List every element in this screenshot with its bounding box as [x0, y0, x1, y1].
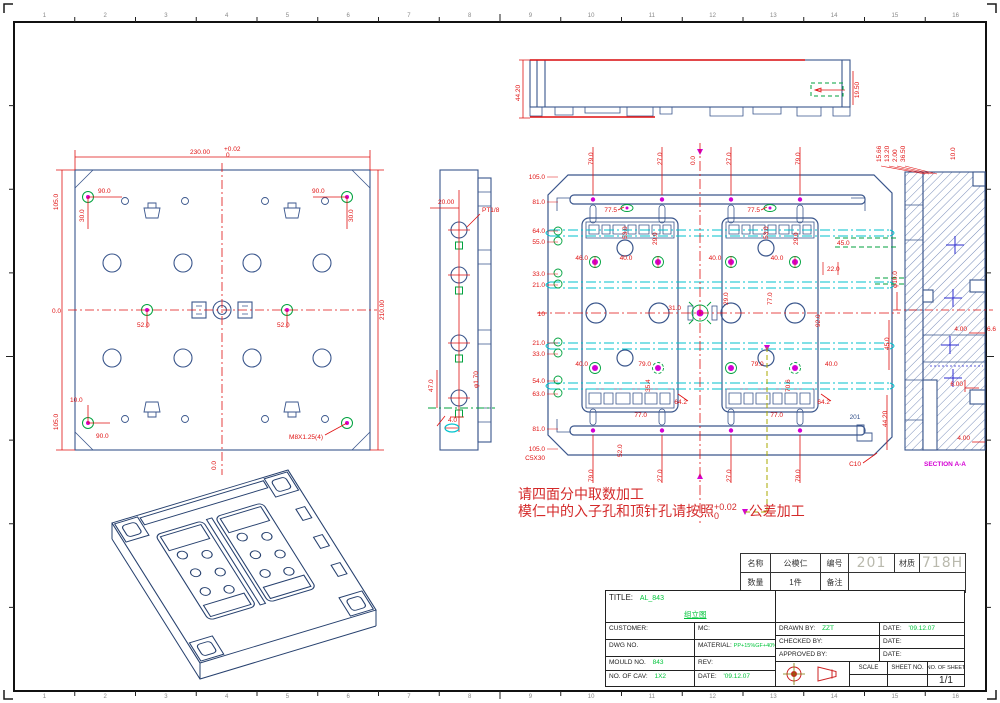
- dim-label: 90.0: [96, 433, 109, 440]
- drawn-by-label: DRAWN BY:: [779, 625, 815, 632]
- dim-label: 21.0: [532, 282, 545, 289]
- zone-label: 8: [439, 12, 500, 20]
- zone-label: 16: [925, 12, 986, 20]
- zone-label: 13: [743, 693, 804, 701]
- dim-label: 30.0: [79, 209, 86, 222]
- section-label: SECTION A-A: [924, 461, 966, 468]
- dim-label: 10: [538, 311, 546, 318]
- dim-label: 40.0: [709, 255, 722, 262]
- parts-no-label: 编号: [821, 554, 849, 573]
- zone-label: 14: [804, 693, 865, 701]
- dim-label: 40.0: [771, 255, 784, 262]
- dim-label: 64.2: [674, 399, 687, 406]
- dim-label: 105.0: [529, 446, 546, 453]
- section-view: 15.66 13.20 2.00 36.50 10.0 φ10.0 45.0 4…: [875, 130, 1000, 475]
- mould-no-label: MOULD NO.: [609, 659, 646, 666]
- zone-label: 1: [14, 693, 75, 701]
- dim-label: 10.0: [70, 397, 83, 404]
- dim-label: 81.0: [532, 426, 545, 433]
- engineering-drawing-sheet: { "colors":{"line":"#3a568c","dim":"#e01…: [0, 0, 1000, 703]
- dim-label: 22.0: [827, 266, 840, 273]
- parts-material-label: 材质: [895, 554, 920, 573]
- zone-label: 8: [439, 693, 500, 701]
- material-value: PP+15%GF+40%MD: [734, 643, 776, 649]
- note-suffix: 公差加工: [749, 503, 805, 519]
- dim-label: 77.0: [634, 412, 647, 419]
- dim-label: 2.00: [892, 149, 899, 162]
- subtitle: 组立图: [684, 609, 707, 620]
- scale-value: [849, 674, 887, 686]
- dim-label: 10.0: [950, 147, 957, 160]
- dim-label: 105.0: [53, 413, 60, 430]
- dim-label: 13.20: [884, 145, 891, 162]
- zone-label: 16: [925, 693, 986, 701]
- dim-label: 79.0: [795, 469, 802, 482]
- dim-label: 6.6: [987, 326, 996, 333]
- part-number-mark: 201: [850, 414, 861, 421]
- zone-label: 2: [75, 12, 136, 20]
- dim-label: 40.0: [825, 361, 838, 368]
- dim-label: 79.0: [638, 361, 651, 368]
- dim-label: 77.5: [747, 207, 760, 214]
- approved-by-label: APPROVED BY:: [779, 651, 827, 658]
- title-value: AL_843: [640, 595, 664, 602]
- dim-label: 0.0: [52, 308, 61, 315]
- zone-label: 5: [257, 12, 318, 20]
- zone-label: 1: [14, 12, 75, 20]
- dwg-no-label: DWG NO.: [609, 642, 638, 649]
- dim-label: 44.20: [882, 410, 889, 427]
- cone-symbol-icon: [818, 667, 836, 681]
- dim-label: 27.0: [657, 469, 664, 482]
- zone-label: 12: [682, 12, 743, 20]
- dim-label: 63.0: [532, 391, 545, 398]
- dim-label: 79.0: [588, 152, 595, 165]
- zone-label: 15: [865, 693, 926, 701]
- dim-label: 79.0: [795, 152, 802, 165]
- note-line1: 请四面分中取数加工: [518, 486, 805, 503]
- dim-label: 53.0: [763, 226, 770, 239]
- parts-name-value: 公模仁: [771, 554, 821, 573]
- dim-label: 4.00: [954, 326, 967, 333]
- zone-label: 6: [318, 12, 379, 20]
- scale-label: SCALE: [859, 665, 879, 671]
- dim-label: 30.0: [348, 209, 355, 222]
- customer-label: CUSTOMER:: [609, 625, 648, 632]
- dim-label: 15.66: [876, 145, 883, 162]
- dim-label: 45.0: [837, 240, 850, 247]
- parts-table: 名称 公模仁 编号 201 材质 718H 数量 1件 备注: [740, 553, 966, 593]
- dim-label: 4.0: [448, 417, 457, 424]
- dim-label: 27.0: [657, 152, 664, 165]
- zone-label: 9: [500, 693, 561, 701]
- dim-label: 55.0: [532, 239, 545, 246]
- note-line2: 模仁中的入子孔和顶针孔请按照+0.020公差加工: [518, 503, 805, 521]
- dim-label: 52.0: [617, 444, 624, 457]
- dim-label: 77.0: [770, 412, 783, 419]
- dim-label: 64.0: [532, 228, 545, 235]
- zone-label: 12: [682, 693, 743, 701]
- dim-label: 31.0: [668, 305, 681, 312]
- cav-label: NO. OF CAV:: [609, 673, 648, 680]
- dim-label: 19.50: [854, 81, 861, 98]
- sheet-no-label: SHEET NO.: [891, 665, 923, 671]
- zone-label: 3: [136, 12, 197, 20]
- dim-label: 45.0: [884, 337, 891, 350]
- zone-label: 13: [743, 12, 804, 20]
- main-view: 105.0 81.0 64.0 55.0 33.0 21.0 10 21.0 3…: [505, 135, 915, 530]
- isometric-view: [85, 455, 425, 700]
- dim-label: 35.4: [645, 379, 652, 392]
- dim-label: φ1.70: [473, 371, 480, 388]
- title-empty-cell: [776, 591, 964, 623]
- dim-label: 6.00: [950, 381, 963, 388]
- zone-label: 11: [622, 12, 683, 20]
- mc-label: MC:: [698, 625, 710, 632]
- zone-label: 14: [804, 12, 865, 20]
- dim-label: φ10.0: [892, 271, 899, 288]
- dim-label: 29.0: [793, 232, 800, 245]
- dim-label: 70.6: [785, 379, 792, 392]
- dim-label: 47.0: [428, 379, 435, 392]
- dim-label: 92.0: [815, 314, 822, 327]
- material-label: MATERIAL:: [698, 642, 732, 649]
- dim-label: 33.0: [532, 351, 545, 358]
- drawn-by-value: ZZT: [822, 625, 834, 632]
- tolerance-lower: 0: [714, 511, 719, 521]
- dim-label: 0: [226, 152, 230, 159]
- dim-label: 90.0: [98, 188, 111, 195]
- zone-label: 15: [865, 12, 926, 20]
- dim-label: 54.0: [532, 378, 545, 385]
- dim-label: 79.0: [588, 469, 595, 482]
- dim-label: 36.50: [900, 145, 907, 162]
- mould-no-value: 843: [653, 659, 664, 666]
- dim-label: 77.5: [604, 207, 617, 214]
- dim-label: 46.0: [575, 255, 588, 262]
- cav-value: 1X2: [654, 673, 666, 680]
- dim-label: 21.0: [532, 340, 545, 347]
- dim-label: 52.0: [137, 322, 150, 329]
- plan-view: 230.00 +0.02 0 105.0 0.0 105.0 210.00 90…: [40, 130, 400, 480]
- dim-label: 20.00: [438, 199, 455, 206]
- date1-value: '09.12.07: [908, 625, 935, 632]
- dim-label: 230.00: [190, 149, 210, 156]
- dim-label: 27.0: [726, 469, 733, 482]
- date-label: DATE:: [698, 673, 717, 680]
- zone-label: 10: [561, 12, 622, 20]
- zone-label: 10: [561, 693, 622, 701]
- dim-label: 105.0: [529, 174, 546, 181]
- dim-label: PT1/8: [482, 207, 500, 214]
- zone-label: 4: [196, 12, 257, 20]
- date-value: '09.12.07: [723, 673, 750, 680]
- dim-label: 64.2: [817, 399, 830, 406]
- title-block: TITLE: AL_843 组立图 CUSTOMER: MC: DWG NO. …: [605, 590, 965, 687]
- dim-label: 44.20: [515, 84, 522, 101]
- dim-label: M8X1.25(4): [289, 434, 323, 441]
- dim-label: C10: [849, 461, 861, 468]
- top-elevation-view: 44.20 19.50: [515, 45, 870, 135]
- dim-label: 33.0: [532, 271, 545, 278]
- sheet-no-value: [887, 674, 927, 686]
- zone-numbers-top: 12345678910111213141516: [14, 12, 986, 20]
- parts-name-label: 名称: [741, 554, 771, 573]
- zone-label: 9: [500, 12, 561, 20]
- parts-no-value: 201: [849, 554, 895, 573]
- projection-symbols: [780, 663, 846, 685]
- dim-label: 27.0: [726, 152, 733, 165]
- dim-label: 29.0: [652, 232, 659, 245]
- date3-label: DATE:: [883, 651, 902, 658]
- machining-note: 请四面分中取数加工 模仁中的入子孔和顶针孔请按照+0.020公差加工: [518, 486, 805, 521]
- checked-by-label: CHECKED BY:: [779, 638, 823, 645]
- dim-label: 77.0: [767, 292, 774, 305]
- dim-label: 90.0: [312, 188, 325, 195]
- date1-label: DATE:: [883, 625, 902, 632]
- dim-label: 210.00: [379, 300, 386, 320]
- dim-label: 4.00: [957, 435, 970, 442]
- dim-label: 79.0: [751, 361, 764, 368]
- dim-label: 81.0: [532, 199, 545, 206]
- zone-label: 11: [622, 693, 683, 701]
- dim-label: C5X30: [525, 455, 545, 462]
- dim-label: 53.0: [622, 226, 629, 239]
- dim-label: 0.0: [690, 156, 697, 165]
- dim-label: 29.0: [723, 292, 730, 305]
- dim-label: 40.0: [575, 361, 588, 368]
- rev-label: REV:: [698, 659, 713, 666]
- zone-label: 7: [379, 12, 440, 20]
- date2-label: DATE:: [883, 638, 902, 645]
- title-label: TITLE:: [609, 593, 633, 602]
- dim-label: 105.0: [53, 193, 60, 210]
- dim-label: 40.0: [620, 255, 633, 262]
- no-of-sheet-label: NO. OF SHEET: [927, 665, 964, 671]
- parts-material-value: 718H: [920, 554, 965, 573]
- sheet-count-value: 1/1: [939, 675, 953, 686]
- dim-label: 52.0: [277, 322, 290, 329]
